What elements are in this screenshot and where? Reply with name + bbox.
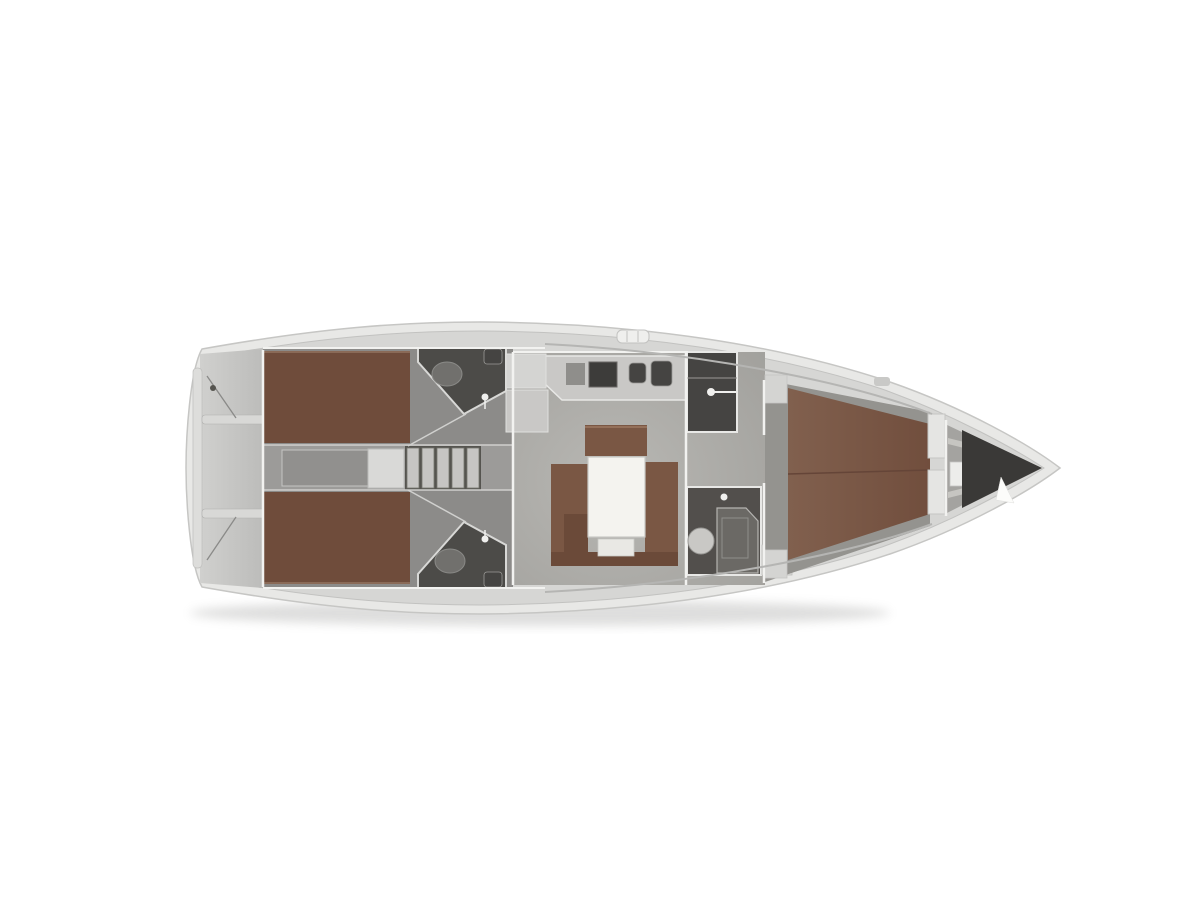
cockpit-floor (200, 349, 263, 588)
yacht-floorplan (0, 0, 1200, 900)
step-slat (407, 448, 419, 488)
sink-small (629, 363, 646, 383)
aft-berth-port (264, 352, 410, 443)
sink-large (651, 361, 672, 386)
toilet (688, 528, 714, 554)
door-handle (482, 536, 489, 543)
settee-right (645, 462, 678, 564)
aft-cabin-starboard (264, 492, 410, 583)
step-slat (452, 448, 464, 488)
settee-backrest (585, 425, 647, 456)
door-handle (721, 494, 728, 501)
sink (484, 349, 502, 364)
corner-cabinet-top (765, 375, 787, 403)
salon-table (588, 457, 645, 537)
deck-fitting-dot (210, 385, 216, 391)
rail-knob (707, 388, 715, 396)
companionway (263, 445, 513, 490)
deck-hatch (617, 330, 649, 343)
toilet (432, 362, 462, 386)
fore-deck-fitting (874, 377, 890, 386)
toilet (435, 549, 465, 573)
step-slat (467, 448, 479, 488)
engine-box (282, 450, 368, 486)
aft-berth-starboard (264, 492, 410, 583)
step-slat (422, 448, 434, 488)
transom-step (193, 368, 202, 568)
companionway-steps (407, 448, 479, 488)
step-slat (437, 448, 449, 488)
galley (543, 356, 688, 400)
door-handle (482, 394, 489, 401)
table-step (598, 539, 634, 556)
sink (484, 572, 502, 587)
appliance (566, 363, 585, 385)
settee-corner-seat (564, 514, 588, 554)
bow-bulkhead-top (928, 414, 945, 458)
stove (589, 362, 617, 387)
companionway-landing (368, 449, 404, 488)
bow-bulkhead-bottom (928, 470, 945, 514)
aft-cabin-port (264, 352, 410, 443)
